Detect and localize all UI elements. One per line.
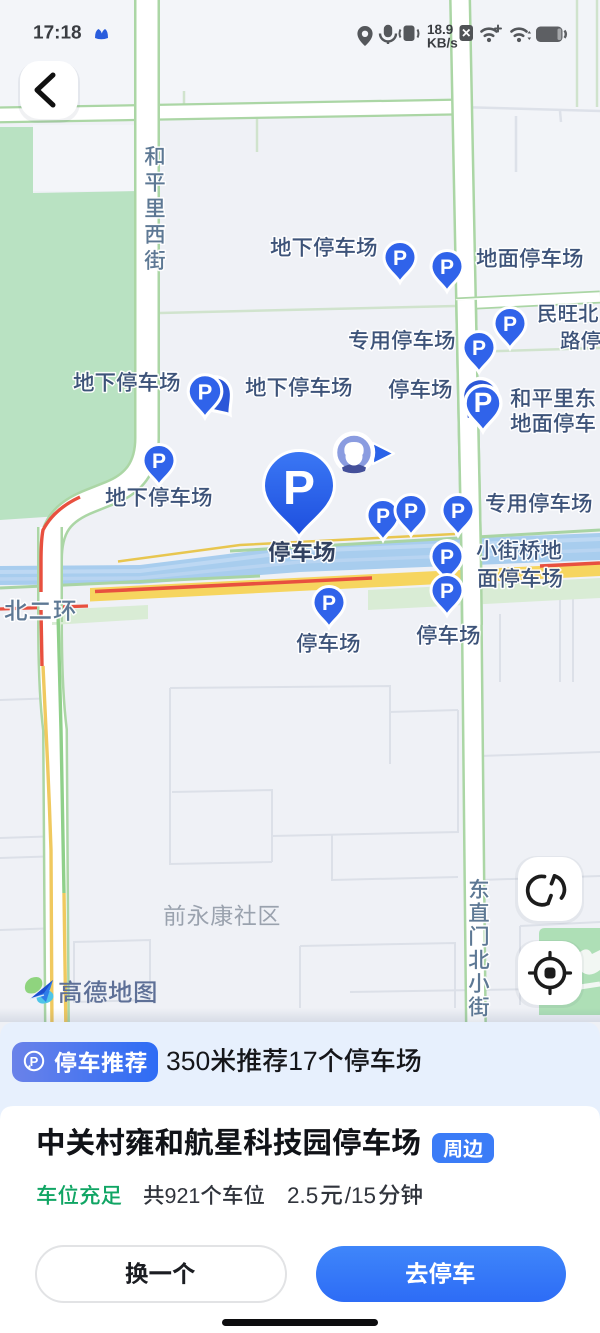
svg-text:17:18: 17:18 <box>33 23 82 44</box>
svg-text:P: P <box>198 380 213 404</box>
svg-text:P: P <box>451 500 465 523</box>
svg-text:17: 17 <box>288 1046 317 1076</box>
svg-text:P: P <box>440 256 454 279</box>
svg-text:KB/s: KB/s <box>427 36 458 51</box>
svg-text:P: P <box>440 546 454 569</box>
svg-text:P: P <box>404 500 418 523</box>
svg-text:P: P <box>283 462 315 515</box>
svg-text:P: P <box>30 1054 39 1069</box>
svg-text:P: P <box>474 387 493 418</box>
svg-text:921: 921 <box>165 1184 201 1208</box>
svg-text:P: P <box>376 505 390 528</box>
svg-text:/15: /15 <box>345 1183 376 1208</box>
svg-text:2.5: 2.5 <box>287 1183 318 1208</box>
svg-text:P: P <box>322 592 336 615</box>
svg-text:P: P <box>503 313 517 336</box>
svg-text:P: P <box>393 247 407 270</box>
svg-text:P: P <box>152 450 166 473</box>
svg-text:350: 350 <box>166 1046 210 1076</box>
svg-text:P: P <box>440 580 454 603</box>
svg-text:P: P <box>472 337 486 360</box>
